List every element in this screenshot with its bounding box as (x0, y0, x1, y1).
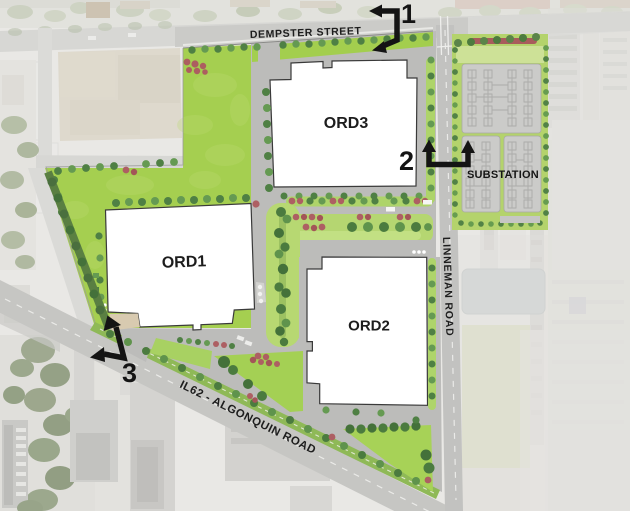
svg-text:ORD3: ORD3 (324, 115, 369, 132)
svg-text:ORD1: ORD1 (162, 253, 207, 272)
svg-text:SUBSTATION: SUBSTATION (467, 169, 539, 181)
svg-text:2: 2 (399, 146, 414, 176)
svg-text:3: 3 (122, 358, 137, 388)
svg-text:1: 1 (401, 0, 416, 29)
svg-text:ORD2: ORD2 (348, 318, 390, 335)
